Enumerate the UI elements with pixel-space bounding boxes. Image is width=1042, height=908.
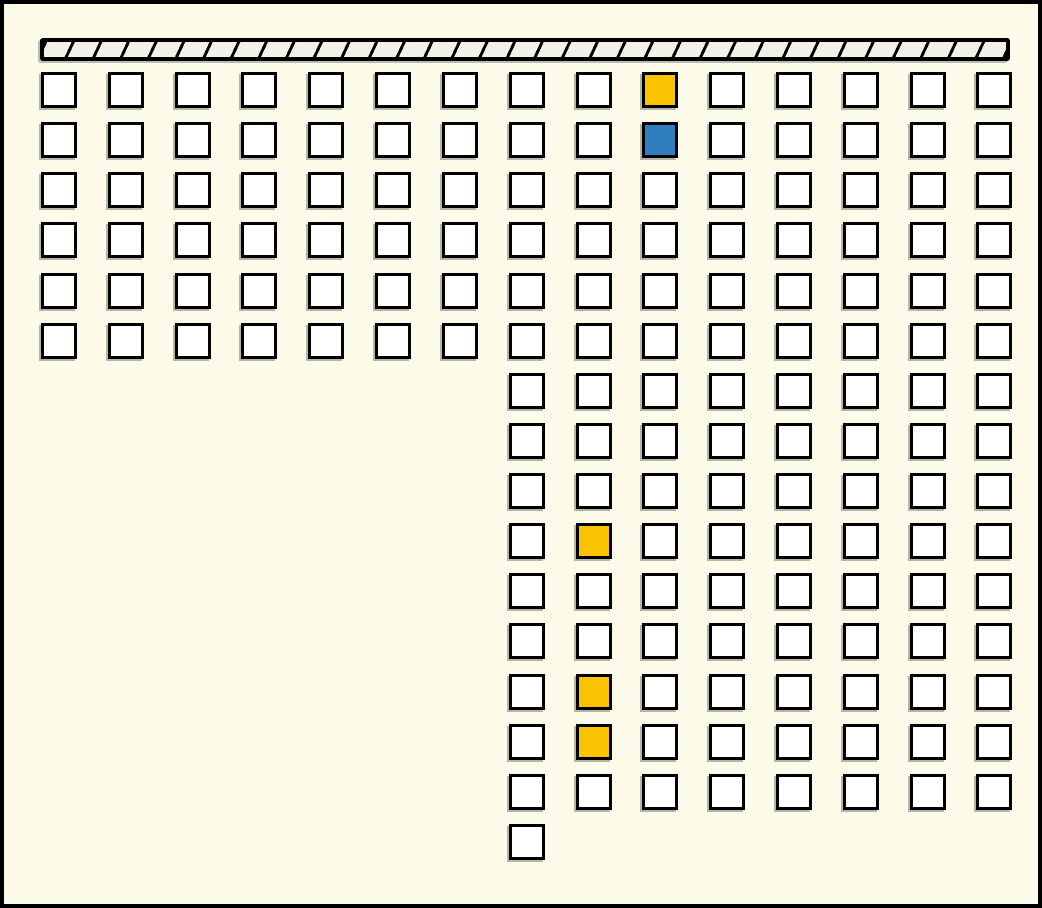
seat-square[interactable] — [375, 72, 411, 108]
seat-square[interactable] — [709, 122, 745, 158]
seat-square[interactable] — [241, 122, 277, 158]
seat-square[interactable] — [642, 523, 678, 559]
seat-square[interactable] — [375, 323, 411, 359]
seat-square[interactable] — [576, 373, 612, 409]
seat-square[interactable] — [41, 122, 77, 158]
seat-square[interactable] — [976, 222, 1012, 258]
seat-square[interactable] — [576, 273, 612, 309]
seat-square-yellow[interactable] — [642, 72, 678, 108]
seat-square[interactable] — [175, 222, 211, 258]
seat-square-yellow[interactable] — [576, 523, 612, 559]
seat-square[interactable] — [976, 573, 1012, 609]
seat-square[interactable] — [776, 774, 812, 810]
seat-square[interactable] — [709, 573, 745, 609]
seat-square[interactable] — [776, 122, 812, 158]
seat-square[interactable] — [442, 273, 478, 309]
seat-square[interactable] — [375, 172, 411, 208]
seat-square[interactable] — [843, 122, 879, 158]
seat-square[interactable] — [509, 373, 545, 409]
seat-square[interactable] — [910, 674, 946, 710]
seat-square[interactable] — [910, 172, 946, 208]
seat-square[interactable] — [442, 122, 478, 158]
seat-square[interactable] — [776, 172, 812, 208]
seat-square[interactable] — [308, 273, 344, 309]
seat-square[interactable] — [976, 423, 1012, 459]
seat-square[interactable] — [41, 222, 77, 258]
seat-square[interactable] — [976, 323, 1012, 359]
seat-square[interactable] — [642, 674, 678, 710]
seat-square[interactable] — [642, 573, 678, 609]
seat-square[interactable] — [843, 623, 879, 659]
seat-square[interactable] — [175, 273, 211, 309]
seat-square[interactable] — [843, 423, 879, 459]
seat-square[interactable] — [642, 172, 678, 208]
seat-square[interactable] — [776, 423, 812, 459]
seat-square[interactable] — [776, 724, 812, 760]
seat-square[interactable] — [709, 323, 745, 359]
seat-square[interactable] — [976, 473, 1012, 509]
seat-square[interactable] — [509, 724, 545, 760]
seat-square[interactable] — [910, 222, 946, 258]
seat-square[interactable] — [976, 273, 1012, 309]
seat-square[interactable] — [108, 122, 144, 158]
seat-square[interactable] — [709, 273, 745, 309]
seat-square[interactable] — [910, 724, 946, 760]
seat-square[interactable] — [241, 323, 277, 359]
seat-square[interactable] — [776, 222, 812, 258]
seat-square[interactable] — [576, 623, 612, 659]
seat-square[interactable] — [976, 774, 1012, 810]
seat-square[interactable] — [175, 323, 211, 359]
seat-square[interactable] — [709, 222, 745, 258]
seat-square[interactable] — [776, 72, 812, 108]
seat-square[interactable] — [843, 473, 879, 509]
seat-square[interactable] — [843, 373, 879, 409]
seat-square[interactable] — [843, 72, 879, 108]
seat-square[interactable] — [576, 323, 612, 359]
seat-square[interactable] — [976, 122, 1012, 158]
seat-square[interactable] — [776, 323, 812, 359]
seat-square[interactable] — [41, 273, 77, 309]
seat-square[interactable] — [442, 172, 478, 208]
seat-square[interactable] — [108, 222, 144, 258]
seat-square[interactable] — [910, 623, 946, 659]
seat-square[interactable] — [776, 523, 812, 559]
seat-square[interactable] — [910, 273, 946, 309]
seat-square[interactable] — [375, 273, 411, 309]
seat-square[interactable] — [709, 373, 745, 409]
seat-square[interactable] — [108, 172, 144, 208]
seat-square[interactable] — [509, 824, 545, 860]
seat-square[interactable] — [642, 623, 678, 659]
seat-square[interactable] — [509, 774, 545, 810]
seat-square[interactable] — [709, 72, 745, 108]
seat-square[interactable] — [642, 423, 678, 459]
seat-square[interactable] — [509, 523, 545, 559]
seat-square[interactable] — [709, 423, 745, 459]
seat-square[interactable] — [776, 273, 812, 309]
seat-square[interactable] — [776, 623, 812, 659]
seat-square[interactable] — [642, 373, 678, 409]
seat-square[interactable] — [41, 72, 77, 108]
seat-square[interactable] — [910, 523, 946, 559]
seat-square[interactable] — [843, 273, 879, 309]
seat-square[interactable] — [175, 72, 211, 108]
seat-square[interactable] — [509, 222, 545, 258]
seat-square[interactable] — [843, 573, 879, 609]
seat-square[interactable] — [175, 172, 211, 208]
seat-square[interactable] — [976, 724, 1012, 760]
seat-square[interactable] — [108, 273, 144, 309]
seat-square[interactable] — [509, 273, 545, 309]
seat-square[interactable] — [509, 473, 545, 509]
seat-square[interactable] — [576, 72, 612, 108]
seat-square[interactable] — [509, 674, 545, 710]
seat-square[interactable] — [843, 323, 879, 359]
seat-square[interactable] — [241, 172, 277, 208]
seat-square[interactable] — [576, 473, 612, 509]
seat-square[interactable] — [308, 122, 344, 158]
seat-square[interactable] — [910, 373, 946, 409]
seat-square[interactable] — [509, 122, 545, 158]
seat-square[interactable] — [776, 373, 812, 409]
seat-square[interactable] — [509, 573, 545, 609]
seat-square[interactable] — [976, 523, 1012, 559]
seat-square[interactable] — [41, 172, 77, 208]
seat-square[interactable] — [910, 473, 946, 509]
seat-square[interactable] — [709, 523, 745, 559]
seat-square[interactable] — [509, 172, 545, 208]
seat-square[interactable] — [776, 473, 812, 509]
seat-square[interactable] — [910, 72, 946, 108]
seat-square[interactable] — [910, 122, 946, 158]
seat-square[interactable] — [843, 172, 879, 208]
seat-square[interactable] — [776, 674, 812, 710]
seat-square[interactable] — [308, 222, 344, 258]
seat-square[interactable] — [910, 323, 946, 359]
seat-square[interactable] — [576, 222, 612, 258]
seat-square[interactable] — [576, 423, 612, 459]
seat-square[interactable] — [509, 323, 545, 359]
seat-square[interactable] — [241, 72, 277, 108]
seat-square[interactable] — [976, 373, 1012, 409]
seat-square[interactable] — [509, 623, 545, 659]
seat-square[interactable] — [241, 222, 277, 258]
seat-square-blue[interactable] — [642, 122, 678, 158]
seat-square[interactable] — [709, 774, 745, 810]
seat-square[interactable] — [576, 172, 612, 208]
seat-square[interactable] — [642, 273, 678, 309]
seat-square[interactable] — [375, 122, 411, 158]
seat-square[interactable] — [642, 724, 678, 760]
seat-square[interactable] — [843, 523, 879, 559]
seat-square[interactable] — [843, 774, 879, 810]
seat-square[interactable] — [108, 72, 144, 108]
seat-square[interactable] — [41, 323, 77, 359]
seat-square[interactable] — [976, 172, 1012, 208]
diagram-canvas — [0, 0, 1042, 908]
seat-square[interactable] — [642, 222, 678, 258]
seat-square[interactable] — [576, 122, 612, 158]
seat-square[interactable] — [910, 573, 946, 609]
seat-square[interactable] — [776, 573, 812, 609]
seat-square[interactable] — [642, 323, 678, 359]
seat-square[interactable] — [843, 674, 879, 710]
seat-square[interactable] — [442, 222, 478, 258]
seat-square[interactable] — [241, 273, 277, 309]
seat-square[interactable] — [709, 473, 745, 509]
seat-square[interactable] — [308, 323, 344, 359]
seat-square-yellow[interactable] — [576, 724, 612, 760]
seat-square[interactable] — [442, 72, 478, 108]
seat-square[interactable] — [576, 573, 612, 609]
seat-square[interactable] — [642, 473, 678, 509]
seat-square[interactable] — [843, 724, 879, 760]
seat-square[interactable] — [709, 724, 745, 760]
seat-square[interactable] — [375, 222, 411, 258]
seat-square-yellow[interactable] — [576, 674, 612, 710]
seat-square[interactable] — [843, 222, 879, 258]
seat-square[interactable] — [709, 674, 745, 710]
seat-square[interactable] — [976, 623, 1012, 659]
seat-square[interactable] — [642, 774, 678, 810]
seat-square[interactable] — [976, 72, 1012, 108]
hatched-wall-bar — [40, 38, 1010, 61]
seat-square[interactable] — [175, 122, 211, 158]
seat-square[interactable] — [910, 423, 946, 459]
seat-square[interactable] — [509, 423, 545, 459]
seat-square[interactable] — [910, 774, 946, 810]
seat-square[interactable] — [576, 774, 612, 810]
seat-square[interactable] — [308, 172, 344, 208]
seat-square[interactable] — [709, 172, 745, 208]
seat-square[interactable] — [976, 674, 1012, 710]
seat-square[interactable] — [509, 72, 545, 108]
seat-square[interactable] — [709, 623, 745, 659]
seat-square[interactable] — [442, 323, 478, 359]
seat-square[interactable] — [308, 72, 344, 108]
seat-square[interactable] — [108, 323, 144, 359]
